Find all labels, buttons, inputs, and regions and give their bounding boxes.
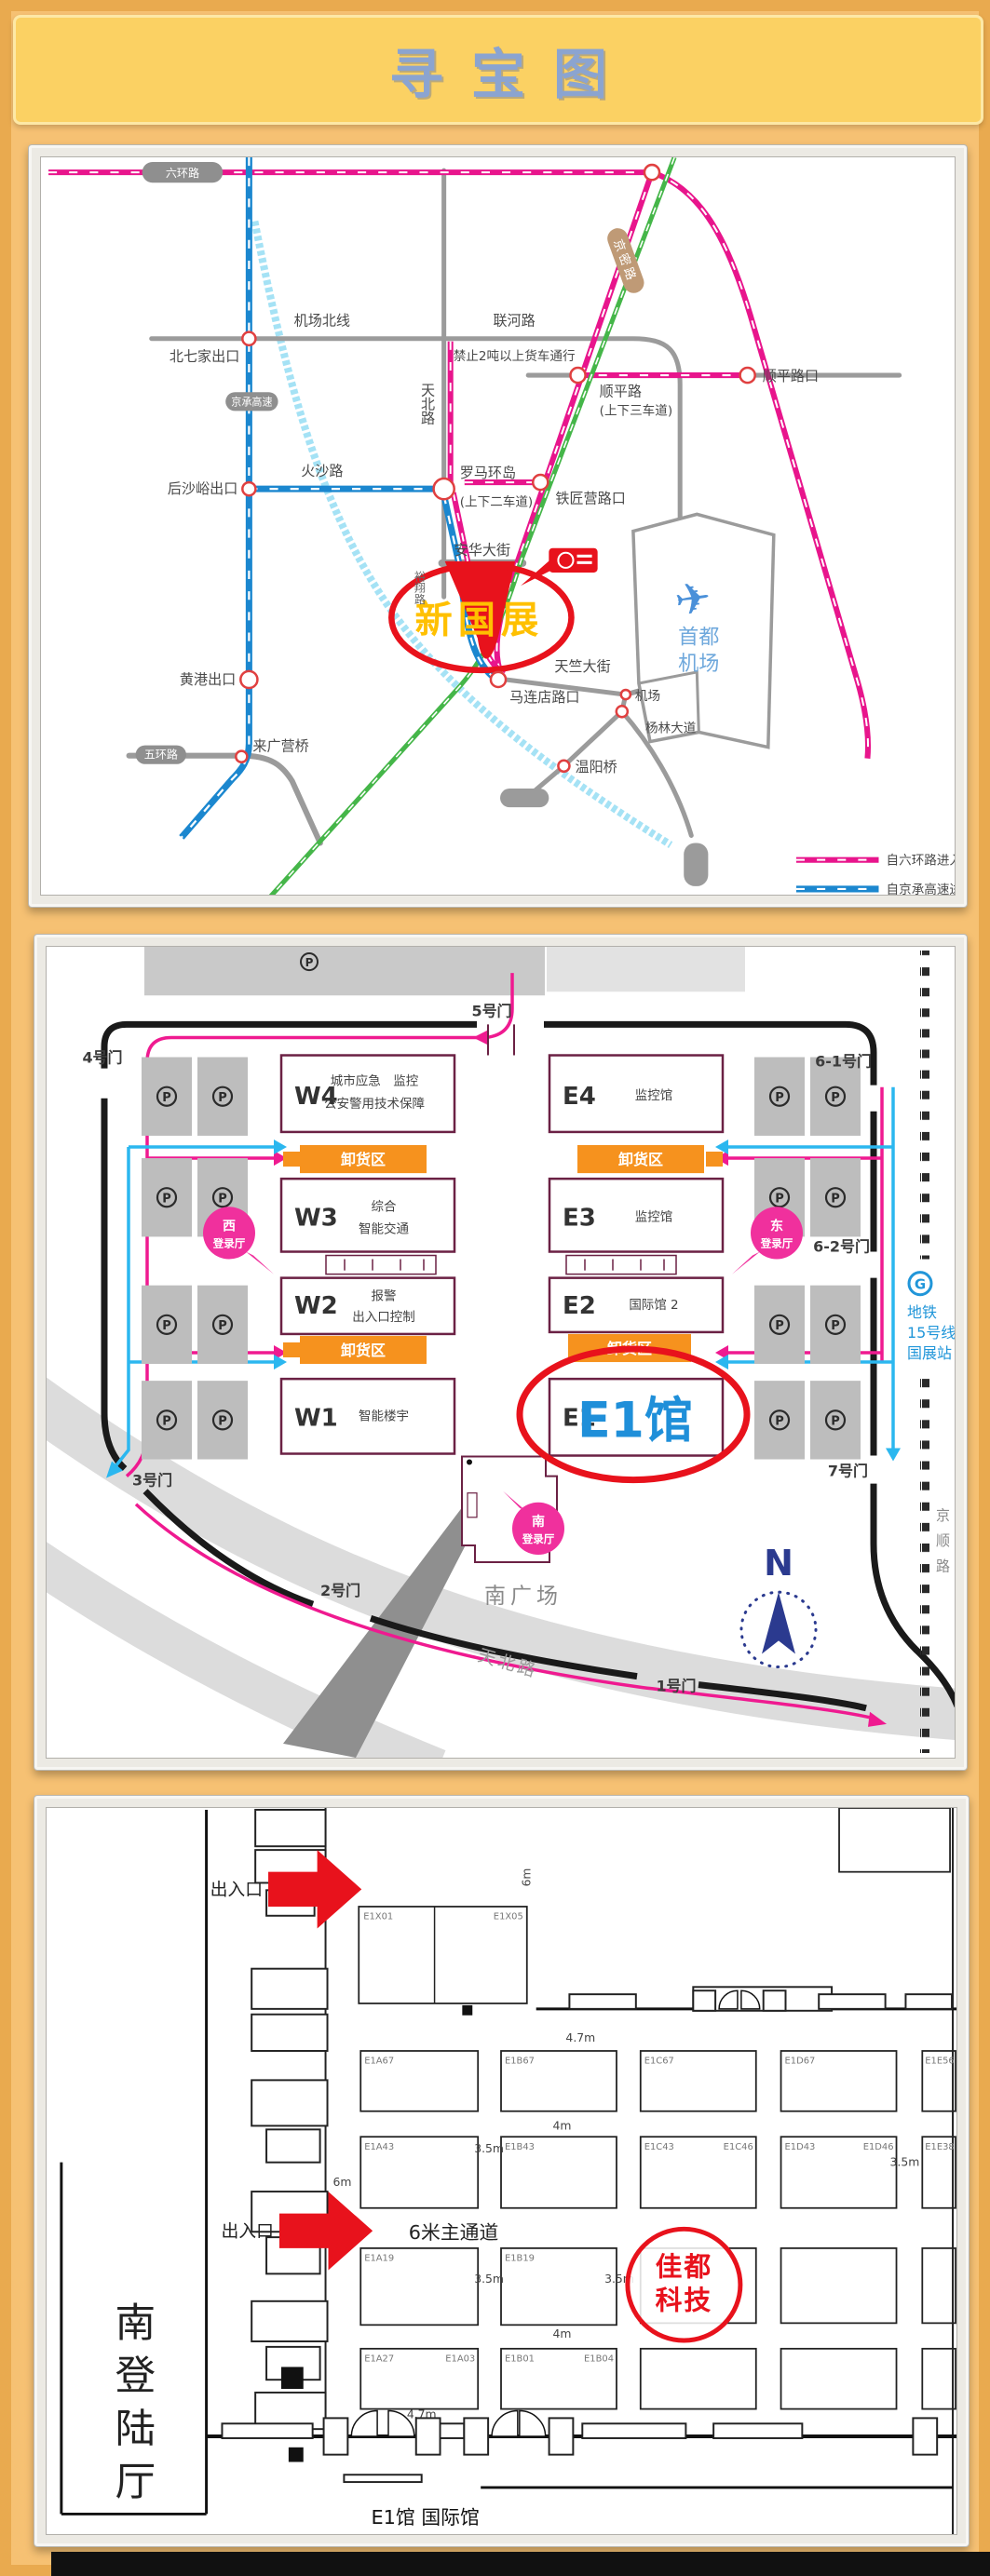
svg-text:4.7m: 4.7m xyxy=(565,2031,595,2044)
parking-block: P xyxy=(810,1158,861,1236)
east-bubble-hall: 登录厅 xyxy=(760,1236,793,1249)
svg-text:E1E38: E1E38 xyxy=(925,2142,954,2152)
floorplan-canvas: 南登陆厅 xyxy=(46,1807,957,2535)
entrance-label-bottom: 出入口 xyxy=(221,2222,274,2242)
gate-4: 4号门 xyxy=(82,1049,122,1067)
svg-text:卸货区: 卸货区 xyxy=(618,1151,663,1168)
target-line1: 佳都 xyxy=(656,2250,712,2282)
gate-6-2: 6-2号门 xyxy=(813,1237,870,1255)
svg-text:6m: 6m xyxy=(521,1868,534,1887)
south-landing-hall-label: 南登陆厅 xyxy=(108,2301,155,2514)
parking-block: P xyxy=(754,1381,805,1459)
airport-label-1: 首都 xyxy=(678,626,719,650)
plane-icon: ✈ xyxy=(671,572,714,627)
hall-w2-code: W2 xyxy=(294,1292,338,1320)
gate-7: 7号门 xyxy=(828,1463,868,1480)
parking-block: P xyxy=(142,1058,192,1136)
booth-label: E1X05 xyxy=(494,1912,523,1922)
page-title: 寻宝图 xyxy=(361,31,635,109)
east-registration-bubble: 东 登录厅 xyxy=(732,1207,803,1274)
svg-text:E1D46: E1D46 xyxy=(863,2142,894,2152)
south-landing-hall: 南登陆厅 xyxy=(61,1810,207,2514)
svg-text:E1B67: E1B67 xyxy=(505,2057,535,2067)
venue-label: 新国展 xyxy=(414,598,544,641)
svg-text:P: P xyxy=(162,1414,171,1428)
shunping-kou-label: 顺平路口 xyxy=(763,368,819,384)
svg-text:P: P xyxy=(775,1414,784,1428)
housha-label: 后沙峪出口 xyxy=(168,480,237,497)
parking-block: P xyxy=(810,1286,861,1364)
svg-text:P: P xyxy=(831,1091,840,1105)
main-aisle-label: 6米主通道 xyxy=(409,2221,499,2244)
parking-block: P xyxy=(197,1286,248,1364)
hall-e3-code: E3 xyxy=(563,1204,596,1232)
gate-1: 1号门 xyxy=(656,1678,696,1695)
svg-text:E1C46: E1C46 xyxy=(724,2142,753,2152)
west-bubble-dir: 西 xyxy=(223,1219,236,1234)
svg-text:五环路: 五环路 xyxy=(144,748,178,762)
hall-w2-desc1: 报警 xyxy=(372,1289,397,1304)
lianhe-label: 联河路 xyxy=(493,313,535,330)
anhua-label: 安华大街 xyxy=(454,542,510,559)
jingshun-road-label: 京顺路 xyxy=(934,1508,951,1584)
center-spine xyxy=(488,1024,514,1055)
tiejiang-label: 铁匠营路口 xyxy=(555,490,625,506)
hall-e4-code: E4 xyxy=(563,1083,596,1111)
compass-n: N xyxy=(764,1543,793,1584)
svg-text:E1B04: E1B04 xyxy=(584,2354,614,2365)
floorplan-frame: 南登陆厅 xyxy=(34,1795,970,2547)
svg-text:P: P xyxy=(831,1192,840,1206)
hall-w1: W1 智能楼宇 xyxy=(281,1379,454,1453)
parking-block: P xyxy=(142,1381,192,1459)
svg-text:P: P xyxy=(162,1091,171,1105)
green-route xyxy=(270,157,675,895)
railway-dashes xyxy=(920,1369,929,1753)
hall-connector-w xyxy=(326,1256,436,1275)
capital-airport-area: ✈ 首都 机场 xyxy=(633,514,774,747)
svg-text:P: P xyxy=(775,1091,784,1105)
hall-e4: E4 监控馆 xyxy=(549,1056,723,1132)
svg-text:P: P xyxy=(218,1319,227,1333)
parking-block: P xyxy=(197,1381,248,1459)
svg-text:4m: 4m xyxy=(553,2119,572,2132)
hall-w1-desc1: 智能楼宇 xyxy=(359,1409,409,1423)
road-pill-ring6: 六环路 xyxy=(142,162,224,182)
east-bubble-dir: 东 xyxy=(770,1218,783,1234)
page-background: 寻宝图 xyxy=(0,0,990,2576)
svg-text:卸货区: 卸货区 xyxy=(341,1342,386,1359)
hall-w4: W4 城市应急 监控 公安警用技术保障 xyxy=(281,1056,454,1132)
hall-w2-desc2: 出入口控制 xyxy=(352,1310,414,1325)
hall-e2-code: E2 xyxy=(563,1292,596,1320)
tianbei-label: 天北路 xyxy=(419,383,436,425)
shunping-label: 顺平路 xyxy=(600,383,642,399)
metro-line3: 国展站 xyxy=(907,1344,952,1362)
yuxiang-label: 裕翔路 xyxy=(413,570,426,605)
svg-text:3.5m: 3.5m xyxy=(474,2142,504,2155)
parking-block: P xyxy=(754,1058,805,1136)
photo-edge xyxy=(51,2552,990,2576)
dimension-labels: 6m 6m 4.7m 4.7m 4m 4m 3.5m 3.5m 3.5m 3.5… xyxy=(332,1868,919,2421)
north-parking-strip-2 xyxy=(547,947,745,991)
svg-text:卸货区: 卸货区 xyxy=(341,1151,386,1168)
e1-highlight-label: E1馆 xyxy=(577,1393,693,1449)
svg-text:P: P xyxy=(775,1192,784,1206)
hall-e3: E3 监控馆 xyxy=(549,1179,723,1251)
metro-line1: 地铁 xyxy=(907,1303,937,1321)
venue-map: P xyxy=(47,947,955,1758)
west-bubble-hall: 登录厅 xyxy=(212,1236,246,1249)
svg-text:P: P xyxy=(218,1192,227,1206)
gate-2: 2号门 xyxy=(320,1582,360,1599)
venue-map-canvas: P xyxy=(46,946,956,1759)
route-map-canvas: ✈ 首都 机场 xyxy=(40,156,956,896)
south-bubble-dir: 南 xyxy=(532,1514,545,1530)
expo-badge-icon xyxy=(521,548,598,586)
parking-block: P xyxy=(754,1286,805,1364)
hall-e3-desc: 监控馆 xyxy=(635,1209,672,1224)
svg-text:6m: 6m xyxy=(332,2176,351,2189)
hall-e2-desc: 国际馆 2 xyxy=(629,1298,678,1313)
unload-zone-w2: 卸货区 xyxy=(283,1336,427,1364)
laiguangying-label: 来广营桥 xyxy=(252,738,308,755)
svg-text:P: P xyxy=(218,1414,227,1428)
hall-w3-desc2: 智能交通 xyxy=(359,1221,409,1236)
road-pill-jingcheng: 京承高速 xyxy=(225,392,278,411)
gate-5: 5号门 xyxy=(471,1002,511,1019)
hall-w3-desc1: 综合 xyxy=(372,1199,397,1214)
huanggang-label: 黄港出口 xyxy=(180,671,236,688)
tianzhu-label: 天竺大街 xyxy=(554,658,610,675)
svg-text:E1A19: E1A19 xyxy=(364,2254,394,2264)
svg-text:P: P xyxy=(831,1414,840,1428)
parking-block: P xyxy=(142,1158,192,1236)
svg-text:E1D67: E1D67 xyxy=(785,2057,816,2067)
target-booth-highlight: 佳都 科技 xyxy=(628,2229,740,2340)
svg-text:P: P xyxy=(305,956,314,969)
legend-ring6: 自六环路进入 xyxy=(887,854,955,869)
truck-ban-label: 禁止2吨以上货车通行 xyxy=(454,348,576,364)
huosha-label: 火沙路 xyxy=(301,463,343,479)
unload-zone-e4: 卸货区 xyxy=(577,1145,723,1173)
hall-e2: E2 国际馆 2 xyxy=(549,1278,723,1332)
gate-6-1: 6-1号门 xyxy=(815,1053,872,1071)
metro-line2: 15号线 xyxy=(907,1324,955,1342)
south-plaza-label: 南广场 xyxy=(484,1585,563,1609)
svg-text:京承高速: 京承高速 xyxy=(231,395,272,408)
title-banner: 寻宝图 xyxy=(13,15,983,125)
compass: N xyxy=(741,1543,816,1667)
parking-block: P xyxy=(142,1286,192,1364)
svg-text:E1A43: E1A43 xyxy=(364,2142,394,2152)
beiqijia-label: 北七家出口 xyxy=(170,348,239,365)
parking-block: P xyxy=(197,1058,248,1136)
svg-text:P: P xyxy=(775,1319,784,1333)
parking-block: P xyxy=(810,1381,861,1459)
hall-title-label: E1馆 国际馆 xyxy=(372,2506,480,2529)
south-bubble-hall: 登录厅 xyxy=(522,1532,555,1545)
booth-label: E1X01 xyxy=(363,1912,393,1922)
svg-text:P: P xyxy=(831,1319,840,1333)
shunping-note-label: (上下三车道) xyxy=(600,402,672,418)
gray-roads xyxy=(129,170,900,886)
gate-3: 3号门 xyxy=(132,1472,172,1490)
svg-text:E1A03: E1A03 xyxy=(445,2354,475,2365)
svg-text:P: P xyxy=(218,1091,227,1105)
west-registration-bubble: 西 登录厅 xyxy=(203,1207,274,1274)
floorplan: 南登陆厅 xyxy=(47,1808,956,2534)
hall-w4-desc1: 城市应急 监控 xyxy=(331,1073,419,1089)
airport-label-2: 机场 xyxy=(678,652,719,676)
svg-text:六环路: 六环路 xyxy=(166,166,199,180)
svg-text:E1B01: E1B01 xyxy=(505,2354,535,2365)
lanes2-label: (上下二车道) xyxy=(460,493,533,509)
svg-text:E1B43: E1B43 xyxy=(505,2142,535,2152)
svg-text:4m: 4m xyxy=(553,2327,572,2340)
hall-w3-code: W3 xyxy=(294,1204,338,1232)
hall-w3: W3 综合 智能交通 xyxy=(281,1179,454,1251)
svg-text:E1C67: E1C67 xyxy=(644,2057,674,2067)
jichang-label: 机场 xyxy=(635,689,660,704)
roma-label: 罗马环岛 xyxy=(460,465,516,481)
target-line2: 科技 xyxy=(656,2285,712,2316)
metro-icon-letter: G xyxy=(915,1276,926,1293)
airport-north-label: 机场北线 xyxy=(294,313,350,330)
svg-text:E1A67: E1A67 xyxy=(364,2057,394,2067)
svg-text:3.5m: 3.5m xyxy=(890,2156,920,2169)
legend-jingcheng: 自京承高速进入 xyxy=(887,882,955,895)
unload-zone-w4: 卸货区 xyxy=(283,1145,427,1173)
svg-text:3.5m: 3.5m xyxy=(474,2273,504,2286)
venue-map-frame: P xyxy=(34,934,968,1771)
svg-text:E1B19: E1B19 xyxy=(505,2254,535,2264)
wenyang-label: 温阳桥 xyxy=(576,759,617,775)
hall-w1-code: W1 xyxy=(294,1404,338,1432)
malian-label: 马连店路口 xyxy=(509,689,579,706)
hall-connector-e xyxy=(566,1256,676,1275)
north-parking-strip xyxy=(144,947,545,995)
route-legend: 自六环路进入 自京承高速进入 xyxy=(796,854,955,895)
hall-e4-desc: 监控馆 xyxy=(635,1088,672,1103)
hall-w2: W2 报警 出入口控制 xyxy=(281,1278,454,1334)
route-map-frame: ✈ 首都 机场 xyxy=(28,144,968,908)
svg-text:P: P xyxy=(162,1319,171,1333)
hall-w4-desc2: 公安警用技术保障 xyxy=(324,1097,425,1112)
road-pill-ring5: 五环路 xyxy=(136,746,186,764)
svg-text:E1E56: E1E56 xyxy=(925,2057,954,2067)
route-map: ✈ 首都 机场 xyxy=(41,157,955,895)
parking-lots: P P P P P P P P P P P P P P P P xyxy=(142,1058,861,1460)
svg-text:E1C43: E1C43 xyxy=(644,2142,674,2152)
railway-dashes xyxy=(920,951,929,1260)
yanglin-label: 杨林大道 xyxy=(645,721,697,735)
svg-text:P: P xyxy=(162,1192,171,1206)
metro-station: G 地铁 15号线 国展站 xyxy=(907,1273,955,1362)
svg-text:E1A27: E1A27 xyxy=(364,2354,394,2365)
entrance-label-top: 出入口 xyxy=(210,1881,264,1900)
svg-text:E1D43: E1D43 xyxy=(785,2142,816,2152)
